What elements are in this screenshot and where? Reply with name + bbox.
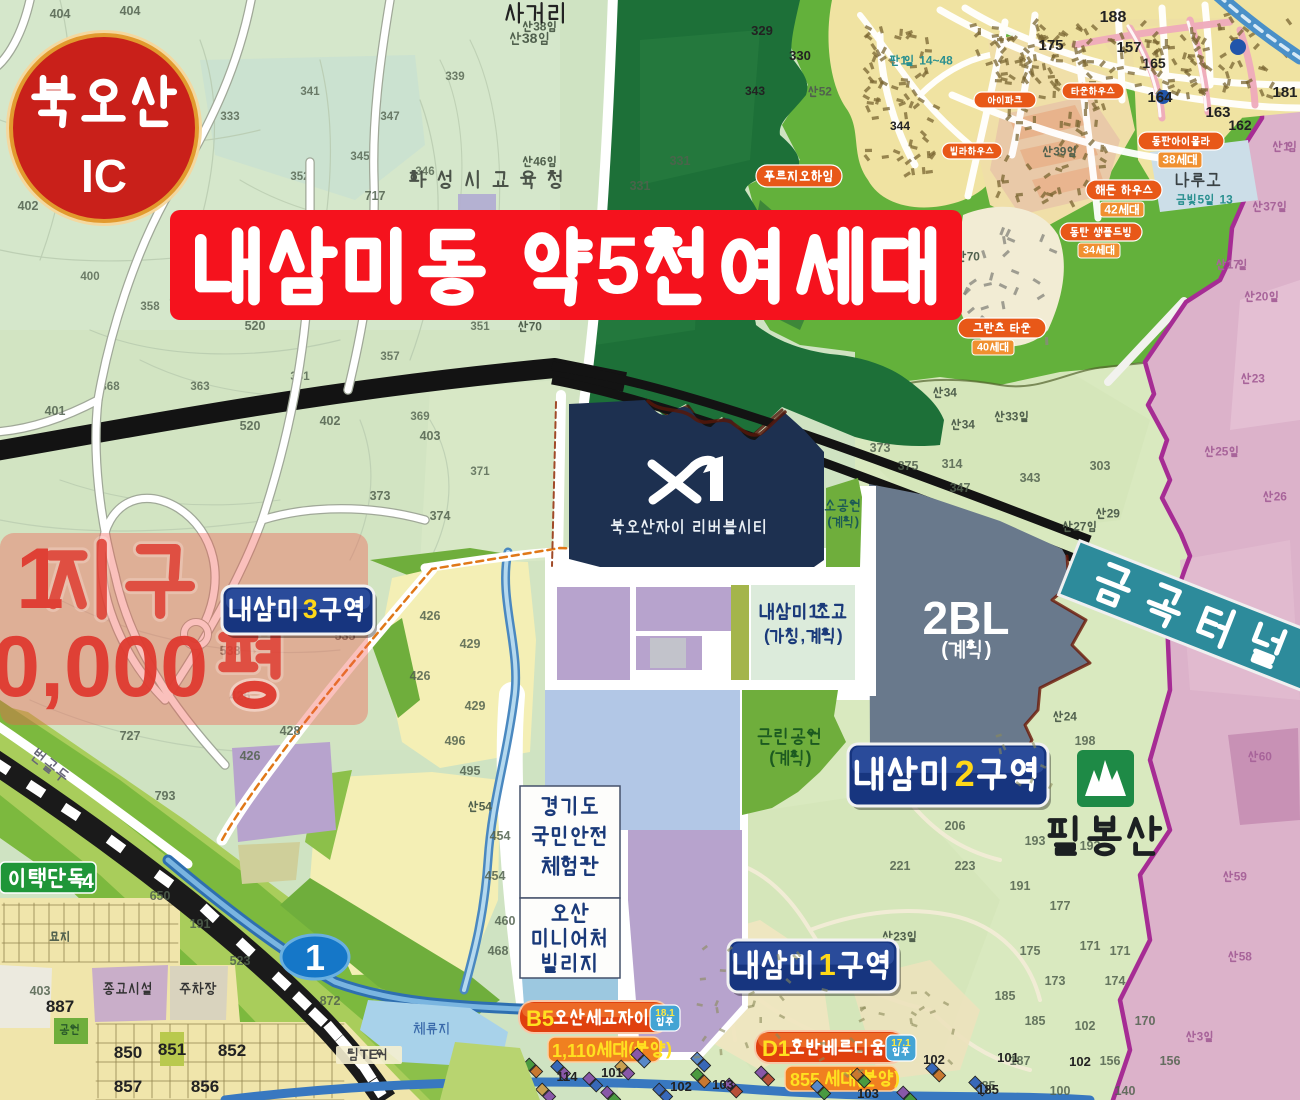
svg-text:29: 29 bbox=[1107, 506, 1121, 520]
svg-text:(: ( bbox=[941, 638, 948, 661]
svg-text:358: 358 bbox=[140, 301, 160, 313]
svg-text:303: 303 bbox=[1090, 459, 1111, 473]
svg-text:454: 454 bbox=[490, 829, 511, 843]
svg-text:177: 177 bbox=[1050, 899, 1071, 913]
svg-text:343: 343 bbox=[745, 84, 765, 98]
svg-text:426: 426 bbox=[410, 669, 431, 683]
svg-text:20: 20 bbox=[1255, 289, 1269, 303]
svg-text:70: 70 bbox=[967, 249, 981, 263]
svg-text:1: 1 bbox=[305, 937, 325, 978]
svg-text:650: 650 bbox=[150, 889, 171, 903]
svg-text:374: 374 bbox=[430, 509, 451, 523]
svg-text:17.1: 17.1 bbox=[891, 1038, 911, 1049]
svg-text:17: 17 bbox=[1227, 257, 1241, 271]
svg-text:404: 404 bbox=[120, 4, 141, 18]
svg-text:18.1: 18.1 bbox=[655, 1008, 675, 1019]
svg-text:850: 850 bbox=[114, 1043, 142, 1062]
svg-text:185: 185 bbox=[977, 1082, 999, 1097]
svg-text:793: 793 bbox=[155, 789, 176, 803]
svg-text:402: 402 bbox=[18, 199, 39, 213]
svg-text:101: 101 bbox=[997, 1050, 1019, 1065]
svg-text:400: 400 bbox=[80, 271, 99, 283]
svg-text:164: 164 bbox=[1147, 89, 1173, 106]
svg-text:887: 887 bbox=[46, 997, 74, 1016]
svg-text:D1: D1 bbox=[762, 1036, 790, 1061]
svg-text:347: 347 bbox=[950, 481, 971, 495]
svg-text:717: 717 bbox=[365, 189, 386, 203]
svg-text:344: 344 bbox=[890, 119, 910, 133]
svg-text:357: 357 bbox=[380, 351, 399, 363]
svg-text:403: 403 bbox=[420, 429, 441, 443]
svg-text:363: 363 bbox=[190, 381, 209, 393]
svg-text:375: 375 bbox=[898, 459, 919, 473]
svg-text:2BL: 2BL bbox=[923, 592, 1010, 644]
svg-text:39: 39 bbox=[1053, 144, 1067, 158]
svg-text:(: ( bbox=[764, 626, 770, 646]
svg-text:206: 206 bbox=[945, 819, 966, 833]
svg-text:373: 373 bbox=[870, 441, 891, 455]
svg-text:TE: TE bbox=[360, 1046, 378, 1062]
svg-text:330: 330 bbox=[789, 48, 811, 63]
svg-text:520: 520 bbox=[240, 419, 261, 433]
svg-text:404: 404 bbox=[50, 7, 71, 21]
svg-text:103: 103 bbox=[712, 1077, 734, 1092]
svg-text:223: 223 bbox=[955, 859, 976, 873]
svg-text:14~48: 14~48 bbox=[919, 53, 953, 67]
svg-text:26: 26 bbox=[1274, 489, 1288, 503]
svg-text:38: 38 bbox=[1162, 152, 1176, 166]
svg-text:37: 37 bbox=[1263, 199, 1277, 213]
svg-text:401: 401 bbox=[45, 404, 66, 418]
svg-text:402: 402 bbox=[320, 414, 341, 428]
svg-text:339: 339 bbox=[445, 71, 464, 83]
svg-text:54: 54 bbox=[479, 799, 493, 813]
svg-text:331: 331 bbox=[630, 179, 651, 193]
svg-text:1: 1 bbox=[16, 531, 64, 627]
svg-text:345: 345 bbox=[350, 151, 370, 163]
svg-text:46: 46 bbox=[533, 154, 547, 168]
svg-text:156: 156 bbox=[1100, 1054, 1121, 1068]
svg-text:520: 520 bbox=[245, 319, 266, 333]
svg-text:373: 373 bbox=[370, 489, 391, 503]
svg-text:13: 13 bbox=[1220, 192, 1234, 206]
svg-text:4: 4 bbox=[82, 870, 94, 893]
svg-text:198: 198 bbox=[1075, 734, 1096, 748]
svg-text:101: 101 bbox=[601, 1065, 623, 1080]
svg-text:329: 329 bbox=[751, 23, 773, 38]
svg-text:428: 428 bbox=[280, 724, 301, 738]
svg-text:): ) bbox=[666, 1039, 672, 1059]
svg-text:IC: IC bbox=[81, 150, 127, 202]
svg-text:371: 371 bbox=[470, 466, 490, 478]
svg-text:38: 38 bbox=[522, 30, 538, 46]
svg-text:351: 351 bbox=[470, 321, 490, 333]
svg-text:341: 341 bbox=[300, 86, 320, 98]
svg-text:343: 343 bbox=[1020, 471, 1041, 485]
svg-text:102: 102 bbox=[1075, 1019, 1096, 1033]
svg-text:191: 191 bbox=[190, 917, 211, 931]
svg-text:162: 162 bbox=[1228, 117, 1252, 133]
svg-text:314: 314 bbox=[942, 457, 963, 471]
svg-text:34: 34 bbox=[1083, 245, 1095, 257]
svg-text:191: 191 bbox=[1010, 879, 1031, 893]
svg-text:B5: B5 bbox=[526, 1006, 554, 1031]
svg-text:1,110: 1,110 bbox=[552, 1041, 596, 1061]
svg-text:52: 52 bbox=[819, 84, 833, 98]
svg-text:24: 24 bbox=[1064, 709, 1078, 723]
svg-text:347: 347 bbox=[380, 111, 399, 123]
svg-text:25: 25 bbox=[1215, 444, 1229, 458]
svg-text:103: 103 bbox=[857, 1086, 879, 1100]
svg-text:181: 181 bbox=[1272, 84, 1297, 101]
svg-text:193: 193 bbox=[1025, 834, 1046, 848]
svg-text:102: 102 bbox=[670, 1079, 692, 1094]
svg-text:727: 727 bbox=[120, 729, 141, 743]
svg-text:(: ( bbox=[769, 748, 775, 768]
svg-text:851: 851 bbox=[158, 1040, 186, 1059]
svg-text:346: 346 bbox=[415, 166, 434, 178]
svg-text:40: 40 bbox=[977, 342, 989, 354]
svg-text:429: 429 bbox=[465, 699, 486, 713]
svg-text:,: , bbox=[800, 626, 805, 646]
svg-text:429: 429 bbox=[460, 637, 481, 651]
svg-text:426: 426 bbox=[240, 749, 261, 763]
svg-text:): ) bbox=[837, 626, 843, 646]
svg-text:185: 185 bbox=[1025, 1014, 1046, 1028]
svg-text:170: 170 bbox=[1135, 1014, 1156, 1028]
svg-text:1: 1 bbox=[808, 601, 818, 622]
svg-text:100: 100 bbox=[1050, 1084, 1071, 1098]
svg-text:165: 165 bbox=[1142, 55, 1166, 71]
svg-text:185: 185 bbox=[995, 989, 1016, 1003]
svg-text:): ) bbox=[894, 1068, 900, 1088]
svg-text:496: 496 bbox=[445, 734, 466, 748]
svg-text:333: 333 bbox=[220, 111, 239, 123]
svg-text:0,000: 0,000 bbox=[0, 619, 208, 715]
svg-text:102: 102 bbox=[1069, 1054, 1091, 1069]
svg-text:34: 34 bbox=[944, 385, 958, 399]
svg-text:102: 102 bbox=[923, 1052, 945, 1067]
svg-text:1: 1 bbox=[1283, 139, 1290, 153]
svg-text:(: ( bbox=[827, 514, 832, 529]
svg-text:403: 403 bbox=[30, 984, 51, 998]
svg-text:221: 221 bbox=[890, 859, 911, 873]
svg-text:34: 34 bbox=[962, 417, 976, 431]
svg-text:175: 175 bbox=[1020, 944, 1041, 958]
svg-text:468: 468 bbox=[488, 944, 509, 958]
svg-text:163: 163 bbox=[1205, 104, 1230, 121]
svg-text:58: 58 bbox=[1239, 949, 1253, 963]
svg-text:42: 42 bbox=[1104, 202, 1118, 216]
svg-text:157: 157 bbox=[1116, 39, 1141, 56]
svg-text:59: 59 bbox=[1234, 869, 1248, 883]
svg-text:174: 174 bbox=[1105, 974, 1126, 988]
svg-text:60: 60 bbox=[1259, 749, 1273, 763]
svg-text:872: 872 bbox=[320, 994, 341, 1008]
svg-text:175: 175 bbox=[1038, 37, 1063, 54]
svg-text:173: 173 bbox=[1045, 974, 1066, 988]
svg-text:188: 188 bbox=[1100, 9, 1127, 26]
svg-text:1: 1 bbox=[900, 53, 907, 67]
svg-text:33: 33 bbox=[1005, 409, 1019, 423]
svg-text:70: 70 bbox=[529, 319, 543, 333]
svg-text:426: 426 bbox=[420, 609, 441, 623]
svg-text:495: 495 bbox=[460, 764, 481, 778]
svg-text:454: 454 bbox=[485, 869, 506, 883]
svg-text:852: 852 bbox=[218, 1041, 246, 1060]
svg-text:27: 27 bbox=[1073, 519, 1087, 533]
svg-text:3: 3 bbox=[1197, 1029, 1204, 1043]
svg-text:3: 3 bbox=[303, 594, 318, 624]
svg-text:): ) bbox=[985, 638, 992, 661]
svg-text:1: 1 bbox=[819, 947, 836, 982]
svg-text:523: 523 bbox=[230, 954, 251, 968]
svg-text:): ) bbox=[855, 514, 859, 529]
svg-text:2: 2 bbox=[955, 753, 975, 794]
svg-text:5: 5 bbox=[1198, 192, 1205, 206]
svg-text:): ) bbox=[806, 748, 812, 768]
svg-text:171: 171 bbox=[1110, 944, 1131, 958]
svg-text:171: 171 bbox=[1080, 939, 1101, 953]
svg-text:114: 114 bbox=[557, 1069, 579, 1084]
svg-text:369: 369 bbox=[410, 411, 429, 423]
svg-text:331: 331 bbox=[670, 154, 691, 168]
svg-text:856: 856 bbox=[191, 1077, 219, 1096]
svg-text:23: 23 bbox=[1252, 371, 1266, 385]
svg-text:857: 857 bbox=[114, 1077, 142, 1096]
svg-text:5: 5 bbox=[595, 221, 640, 311]
svg-text:156: 156 bbox=[1160, 1054, 1181, 1068]
svg-text:140: 140 bbox=[1115, 1084, 1136, 1098]
svg-text:460: 460 bbox=[495, 914, 516, 928]
